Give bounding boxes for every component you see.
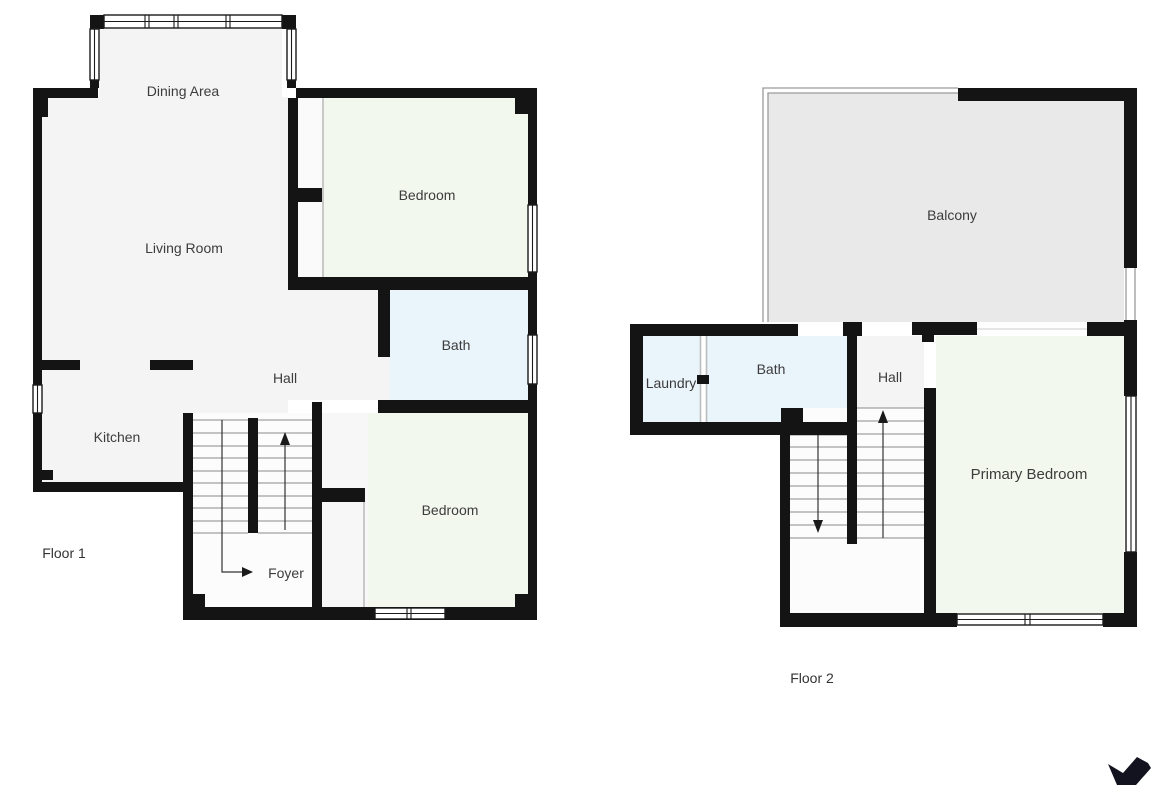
label-dining-area: Dining Area (147, 83, 220, 99)
laundry-door-stub (697, 375, 709, 384)
label-floor-2: Floor 2 (790, 670, 834, 686)
window-bedroom-upper-right (528, 205, 537, 272)
label-living-room: Living Room (145, 240, 223, 256)
room-hall-east (288, 290, 390, 400)
floorplan-svg: Dining Area Bedroom Living Room Bath Hal… (0, 0, 1170, 785)
label-hall-f1: Hall (273, 370, 297, 386)
window-primary-bedroom-bottom (957, 614, 1103, 625)
floor2-plan: Balcony Laundry Bath Hall Primary Bedroo… (630, 88, 1137, 686)
label-balcony: Balcony (927, 207, 977, 223)
label-bath-f1: Bath (442, 337, 471, 353)
label-hall-f2: Hall (878, 369, 902, 385)
window-dining-left (90, 29, 99, 80)
label-kitchen: Kitchen (94, 429, 141, 445)
label-bath-f2: Bath (757, 361, 786, 377)
window-primary-bedroom-right (1126, 396, 1136, 552)
closet-strip-lower-bedroom (322, 413, 368, 607)
label-primary-bedroom: Primary Bedroom (971, 466, 1088, 483)
window-kitchen-left (33, 385, 42, 413)
window-dining-top (104, 15, 282, 28)
bird-logo-icon (1108, 757, 1151, 785)
window-bath-right (528, 335, 537, 384)
label-floor-1: Floor 1 (42, 545, 86, 561)
floorplan-canvas: Dining Area Bedroom Living Room Bath Hal… (0, 0, 1170, 785)
label-bedroom-upper: Bedroom (399, 187, 456, 203)
window-bedroom-lower-bottom (375, 608, 445, 619)
label-bedroom-lower: Bedroom (422, 502, 479, 518)
label-laundry: Laundry (646, 375, 697, 391)
floor1-plan: Dining Area Bedroom Living Room Bath Hal… (33, 15, 537, 620)
window-dining-right (287, 29, 296, 80)
closet-strip-upper-bedroom (298, 98, 323, 277)
label-foyer: Foyer (268, 565, 304, 581)
